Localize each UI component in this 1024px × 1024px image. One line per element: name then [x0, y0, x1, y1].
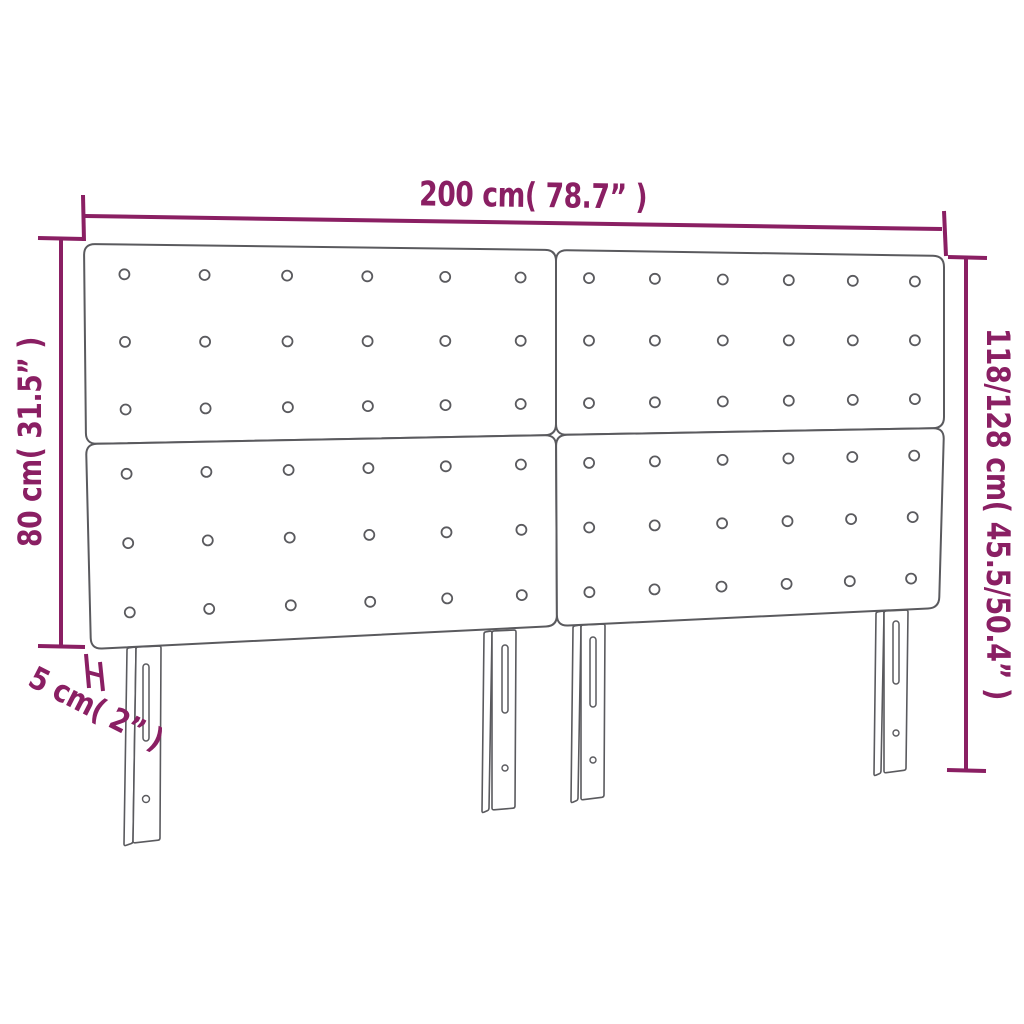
tufting-button: [516, 525, 526, 535]
tufting-button: [848, 335, 858, 345]
tufting-button: [204, 604, 214, 614]
tufting-button: [363, 401, 373, 411]
headboard-panels: [84, 244, 944, 648]
tufting-button: [441, 400, 451, 410]
tufting-button: [516, 460, 526, 470]
tufting-button: [200, 270, 210, 280]
tufting-button: [284, 465, 294, 475]
width-dimension-tick-left: [83, 195, 84, 241]
tufting-button: [718, 397, 728, 407]
leg-side-face: [571, 625, 581, 802]
tufting-button: [200, 337, 210, 347]
tufting-button: [121, 405, 131, 415]
headboard-height-tick-bottom: [38, 646, 85, 647]
tufting-button: [718, 455, 728, 465]
tufting-button: [516, 399, 526, 409]
upholstery-panel: [556, 250, 944, 435]
width-dimension-label: 200 cm( 78.7” ): [419, 174, 648, 217]
tufting-button: [584, 458, 594, 468]
tufting-button: [440, 336, 450, 346]
tufting-button: [784, 396, 794, 406]
leg-screw-hole: [893, 730, 899, 736]
tufting-button: [908, 512, 918, 522]
tufting-button: [584, 273, 594, 283]
tufting-button: [201, 467, 211, 477]
tufting-button: [650, 456, 660, 466]
tufting-button: [906, 574, 916, 584]
tufting-button: [363, 463, 373, 473]
tufting-button: [125, 607, 135, 617]
tufting-button: [285, 533, 295, 543]
tufting-button: [782, 579, 792, 589]
tufting-button: [650, 584, 660, 594]
tufting-button: [847, 452, 857, 462]
tufting-button: [584, 398, 594, 408]
tufting-button: [846, 514, 856, 524]
tufting-button: [717, 518, 727, 528]
tufting-button: [282, 271, 292, 281]
width-dimension-tick-right: [944, 211, 946, 256]
upholstery-panel: [556, 428, 944, 625]
tufting-button: [365, 597, 375, 607]
total-height-tick-bottom: [947, 770, 986, 771]
tufting-button: [122, 469, 132, 479]
tufting-button: [848, 395, 858, 405]
tufting-button: [784, 275, 794, 285]
upholstery-panel: [86, 435, 557, 648]
tufting-button: [441, 461, 451, 471]
leg-mounting-slot: [502, 645, 508, 713]
tufting-button: [784, 335, 794, 345]
tufting-button: [783, 454, 793, 464]
width-dimension-line: [85, 216, 942, 229]
leg-mounting-slot: [590, 637, 596, 707]
tufting-button: [286, 600, 296, 610]
tufting-button: [650, 274, 660, 284]
headboard-legs: [124, 610, 908, 845]
tufting-button: [910, 335, 920, 345]
total-height-tick-top: [948, 257, 987, 258]
tufting-button: [362, 271, 372, 281]
leg-screw-hole: [143, 796, 150, 803]
tufting-button: [650, 397, 660, 407]
tufting-button: [203, 535, 213, 545]
total-height-dimension-label: 118/128 cm( 45.5/50.4” ): [979, 328, 1017, 700]
upholstery-panel: [84, 244, 556, 444]
tufting-button: [848, 276, 858, 286]
tufting-button: [201, 403, 211, 413]
tufting-button: [845, 576, 855, 586]
leg-mounting-slot: [893, 621, 899, 684]
tufting-button: [517, 590, 527, 600]
tufting-button: [650, 336, 660, 346]
tufting-button: [584, 336, 594, 346]
tufting-button: [718, 336, 728, 346]
tufting-button: [909, 451, 919, 461]
tufting-button: [119, 269, 129, 279]
tufting-button: [584, 523, 594, 533]
tufting-button: [440, 272, 450, 282]
tufting-button: [650, 520, 660, 530]
diagram-canvas: 200 cm( 78.7” ) 80 cm( 31.5” ) 118/128 c…: [0, 0, 1024, 1024]
headboard-dimension-diagram: 200 cm( 78.7” ) 80 cm( 31.5” ) 118/128 c…: [0, 0, 1024, 1024]
tufting-button: [123, 538, 133, 548]
leg-side-face: [482, 631, 492, 812]
leg-side-face: [874, 611, 884, 775]
leg-screw-hole: [502, 765, 508, 771]
tufting-button: [364, 530, 374, 540]
tufting-button: [283, 336, 293, 346]
leg-screw-hole: [590, 757, 596, 763]
headboard-height-tick-top: [38, 238, 84, 239]
tufting-button: [283, 402, 293, 412]
tufting-button: [442, 527, 452, 537]
tufting-button: [363, 336, 373, 346]
tufting-button: [516, 273, 526, 283]
tufting-button: [516, 336, 526, 346]
headboard-height-dimension-label: 80 cm( 31.5” ): [11, 337, 49, 547]
tufting-button: [442, 593, 452, 603]
tufting-button: [783, 516, 793, 526]
tufting-button: [717, 582, 727, 592]
tufting-button: [910, 394, 920, 404]
tufting-button: [120, 337, 130, 347]
tufting-button: [910, 277, 920, 287]
tufting-button: [584, 587, 594, 597]
tufting-button: [718, 275, 728, 285]
